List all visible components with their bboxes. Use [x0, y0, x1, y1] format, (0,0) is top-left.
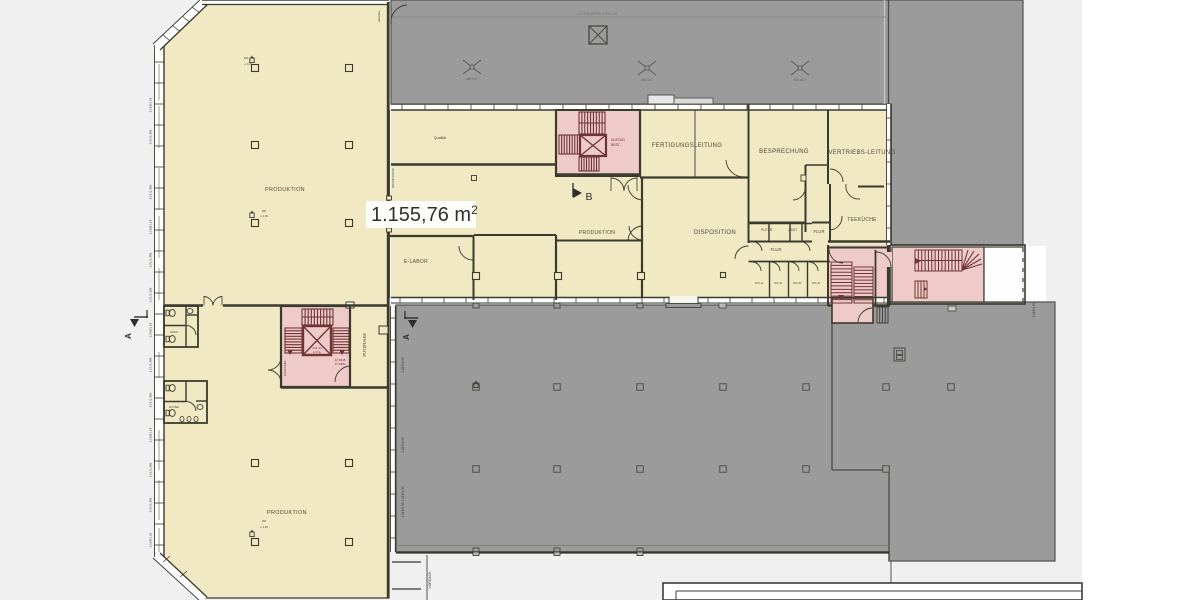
svg-text:RR: RR	[262, 209, 266, 213]
svg-text:B: B	[585, 191, 592, 203]
svg-text:2.01/1.385: 2.01/1.385	[149, 357, 153, 372]
svg-text:1.155,76 m2: 1.155,76 m2	[371, 203, 478, 226]
svg-text:ABLAUF: ABLAUF	[794, 78, 806, 82]
svg-text:AUFZUG: AUFZUG	[611, 138, 625, 142]
svg-text:BEST.: BEST.	[611, 143, 620, 147]
svg-text:A: A	[401, 334, 411, 340]
svg-text:ABLAUF: ABLAUF	[641, 78, 653, 82]
svg-text:E-LABOR: E-LABOR	[404, 259, 428, 265]
svg-text:WC-H: WC-H	[755, 281, 763, 285]
svg-text:PUTZR.: PUTZR.	[761, 228, 773, 232]
svg-text:e 1.36: e 1.36	[260, 525, 268, 529]
svg-text:2.065/1.26: 2.065/1.26	[149, 322, 153, 337]
svg-text:2.065/1.26: 2.065/1.26	[149, 427, 153, 442]
svg-text:WC-D: WC-D	[774, 281, 783, 285]
svg-text:BESPRECHUNG: BESPRECHUNG	[759, 149, 809, 155]
svg-text:2.01/1.385: 2.01/1.385	[149, 129, 153, 144]
svg-text:WGDA: WGDA	[170, 330, 178, 334]
svg-text:RR: RR	[244, 56, 248, 60]
svg-text:2.015/1.30: 2.015/1.30	[401, 437, 405, 452]
svg-text:WC/HER: WC/HER	[169, 406, 179, 409]
svg-text:2.015/1.30 2.015/1.30: 2.015/1.30 2.015/1.30	[401, 486, 405, 517]
svg-text:2.01/1.385: 2.01/1.385	[149, 287, 153, 302]
svg-text:VERTRIEBS-LEITUNG: VERTRIEBS-LEITUNG	[828, 150, 895, 156]
svg-text:2.01/1.385: 2.01/1.385	[149, 252, 153, 267]
svg-text:WC-D: WC-D	[812, 281, 821, 285]
svg-text:PRODUKTION: PRODUKTION	[267, 510, 307, 516]
svg-text:BRANDWAND: BRANDWAND	[391, 167, 395, 187]
svg-text:e 1.06: e 1.06	[260, 214, 268, 218]
svg-text:2.015/1.30: 2.015/1.30	[401, 357, 405, 372]
svg-text:FERTIGUNGSLEITUNG: FERTIGUNGSLEITUNG	[652, 143, 722, 149]
svg-text:LICHTKUPPEL 1.20/1.20: LICHTKUPPEL 1.20/1.20	[577, 12, 617, 16]
svg-text:ABLAUF: ABLAUF	[466, 77, 478, 81]
svg-text:TEEKÜCHE: TEEKÜCHE	[847, 216, 877, 223]
svg-text:2.065/1.26: 2.065/1.26	[149, 532, 153, 547]
svg-text:e 125: e 125	[245, 62, 252, 66]
svg-text:FLUR: FLUR	[814, 229, 825, 234]
svg-text:17.6/282: 17.6/282	[334, 362, 346, 366]
svg-text:2.01/1.385: 2.01/1.385	[149, 497, 153, 512]
svg-text:2.01/1.385: 2.01/1.385	[149, 184, 153, 199]
svg-text:ABST.: ABST.	[788, 228, 797, 232]
svg-text:2.01/1.385: 2.01/1.385	[149, 392, 153, 407]
svg-text:2.065/1.26: 2.065/1.26	[149, 219, 153, 234]
svg-text:WC-B: WC-B	[793, 281, 801, 285]
svg-text:KESSEL: KESSEL	[377, 10, 381, 22]
svg-text:A: A	[123, 333, 133, 339]
svg-text:2.015/1.30: 2.015/1.30	[1032, 302, 1036, 317]
svg-text:VORDACH: VORDACH	[428, 571, 432, 589]
svg-text:2.01/1.385: 2.01/1.385	[149, 462, 153, 477]
svg-text:RR: RR	[262, 519, 266, 523]
svg-text:PRODUKTION: PRODUKTION	[265, 187, 305, 193]
svg-text:2.065/1.26: 2.065/1.26	[149, 97, 153, 112]
svg-text:RAUCHABZ.: RAUCHABZ.	[283, 360, 287, 376]
svg-text:DISPOSITION: DISPOSITION	[694, 230, 736, 236]
svg-text:Qualität: Qualität	[434, 136, 446, 140]
svg-text:PUTZRAUM: PUTZRAUM	[362, 333, 367, 357]
svg-text:PRODUKTION: PRODUKTION	[579, 230, 615, 236]
svg-text:1.0 tlg.: 1.0 tlg.	[313, 350, 322, 354]
svg-text:FLUR: FLUR	[771, 247, 782, 252]
